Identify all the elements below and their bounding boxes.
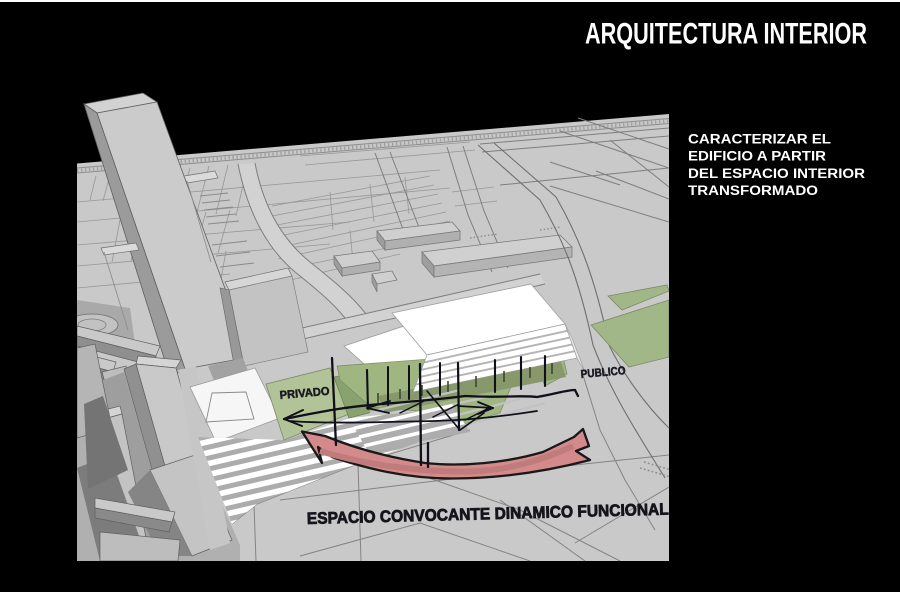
svg-text:DEL ESPACIO INTERIOR: DEL ESPACIO INTERIOR xyxy=(688,166,865,181)
svg-text:ARQUITECTURA INTERIOR: ARQUITECTURA INTERIOR xyxy=(585,18,867,51)
svg-text:EDIFICIO A PARTIR: EDIFICIO A PARTIR xyxy=(688,148,826,163)
svg-text:CARACTERIZAR EL: CARACTERIZAR EL xyxy=(688,131,831,146)
svg-text:TRANSFORMADO: TRANSFORMADO xyxy=(688,183,818,198)
